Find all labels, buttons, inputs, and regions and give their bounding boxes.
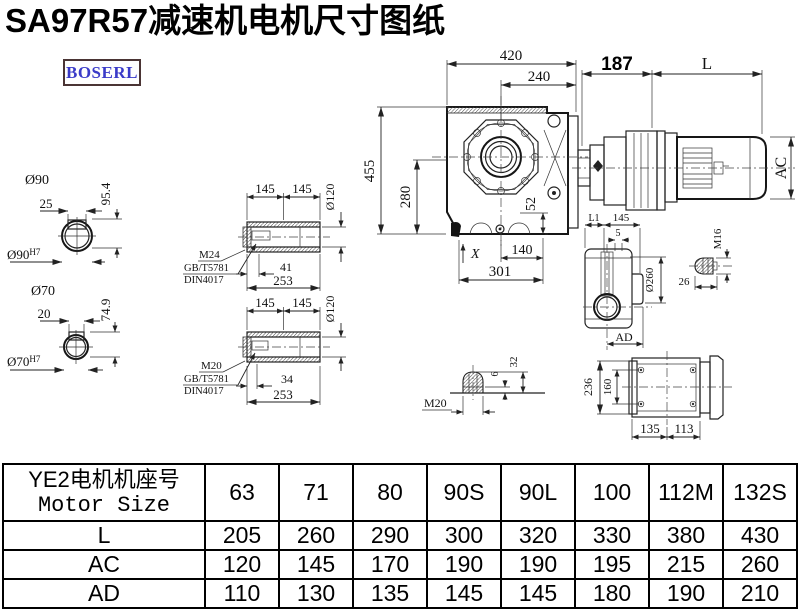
label-d90: Ø90 xyxy=(25,173,49,188)
cell-L-1: 260 xyxy=(279,521,353,550)
cell-L-6: 380 xyxy=(649,521,723,550)
dim-145b: 145 xyxy=(292,295,312,310)
size-col-63: 63 xyxy=(205,464,279,521)
dim-d120: Ø120 xyxy=(323,184,337,211)
motor-size-table: YE2电机机座号 Motor Size 63 71 80 90S 90L 100… xyxy=(2,463,798,609)
gearbox-bottom-view: 236 160 135 113 xyxy=(581,351,732,440)
dim-113: 113 xyxy=(674,421,693,436)
cell-AD-6: 190 xyxy=(649,579,723,608)
dimension-drawing: 420 240 455 280 52 140 301 X xyxy=(0,45,800,460)
shaft-section-70: Ø70 20 74.9 Ø70H7 xyxy=(7,284,120,370)
dim-AD: AD xyxy=(615,330,633,344)
dim-145: 145 xyxy=(613,212,630,224)
table-row-AD: AD 110 130 135 145 145 180 190 210 xyxy=(3,579,797,608)
label-m16: M16 xyxy=(712,228,724,249)
dim-145a: 145 xyxy=(255,295,275,310)
row-label-AC: AC xyxy=(3,550,205,579)
label-gbt5781: GB/T5781 xyxy=(184,374,229,385)
dim-25: 25 xyxy=(40,196,53,211)
table-row-AC: AC 120 145 170 190 190 195 215 260 xyxy=(3,550,797,579)
cell-AC-5: 195 xyxy=(575,550,649,579)
label-din4017: DIN4017 xyxy=(184,386,224,397)
dim-L1: L1 xyxy=(588,213,599,224)
cell-AD-0: 110 xyxy=(205,579,279,608)
size-col-80: 80 xyxy=(353,464,427,521)
bushing-m20: 145 145 Ø120 M20 GB/T5781 DIN4017 34 253 xyxy=(183,295,346,405)
dim-301: 301 xyxy=(489,264,512,280)
dim-34: 34 xyxy=(281,372,293,386)
dim-d120: Ø120 xyxy=(323,296,337,323)
cell-AC-0: 120 xyxy=(205,550,279,579)
cell-AD-7: 210 xyxy=(723,579,797,608)
dim-280: 280 xyxy=(398,186,414,209)
row-label-AD: AD xyxy=(3,579,205,608)
fit-base: Ø70 xyxy=(7,354,29,369)
dim-187: 187 xyxy=(601,54,633,75)
size-col-90l: 90L xyxy=(501,464,575,521)
header-line2: Motor Size xyxy=(4,493,204,519)
size-col-100: 100 xyxy=(575,464,649,521)
size-col-71: 71 xyxy=(279,464,353,521)
cell-AD-3: 145 xyxy=(427,579,501,608)
dim-135: 135 xyxy=(640,421,660,436)
dim-455: 455 xyxy=(362,160,378,183)
cell-AD-1: 130 xyxy=(279,579,353,608)
table-row-L: L 205 260 290 300 320 330 380 430 xyxy=(3,521,797,550)
fit-sup: H7 xyxy=(29,247,40,257)
fit-base: Ø90 xyxy=(7,247,29,262)
label-m20: M20 xyxy=(201,360,222,372)
size-col-90s: 90S xyxy=(427,464,501,521)
dim-52: 52 xyxy=(524,197,539,211)
cell-L-7: 430 xyxy=(723,521,797,550)
shaft-key-mark xyxy=(593,160,603,172)
cell-AC-2: 170 xyxy=(353,550,427,579)
dim-20: 20 xyxy=(38,306,51,321)
label-m24: M24 xyxy=(199,249,220,261)
size-col-132s: 132S xyxy=(723,464,797,521)
label-d90h7: Ø90H7 xyxy=(7,247,41,262)
dim-74-9: 74.9 xyxy=(98,299,113,322)
plug-m16: M16 26 xyxy=(679,228,735,290)
cell-L-5: 330 xyxy=(575,521,649,550)
cell-AC-4: 190 xyxy=(501,550,575,579)
dim-5: 5 xyxy=(616,228,621,239)
dim-26: 26 xyxy=(679,276,691,288)
dim-d260: Ø260 xyxy=(644,267,656,292)
dim-95-4: 95.4 xyxy=(98,182,113,205)
cell-L-3: 300 xyxy=(427,521,501,550)
cell-AD-4: 145 xyxy=(501,579,575,608)
table-header-label: YE2电机机座号 Motor Size xyxy=(3,464,205,521)
cell-AD-5: 180 xyxy=(575,579,649,608)
dim-253: 253 xyxy=(273,387,293,402)
table-header-row: YE2电机机座号 Motor Size 63 71 80 90S 90L 100… xyxy=(3,464,797,521)
cell-L-0: 205 xyxy=(205,521,279,550)
dim-x-mark: X xyxy=(470,247,480,262)
label-d70: Ø70 xyxy=(31,284,55,299)
header-line1: YE2电机机座号 xyxy=(4,467,204,493)
label-gbt5781: GB/T5781 xyxy=(184,263,229,274)
dim-41: 41 xyxy=(280,260,292,274)
size-col-112m: 112M xyxy=(649,464,723,521)
cell-AD-2: 135 xyxy=(353,579,427,608)
gearbox-front-view xyxy=(432,96,588,248)
cell-AC-6: 215 xyxy=(649,550,723,579)
plug-m20: M20 6 32 xyxy=(422,357,545,416)
gearbox-front-dims: 420 240 455 280 52 140 301 X xyxy=(362,48,576,284)
shaft-section-90: Ø90 25 95.4 Ø90H7 xyxy=(7,173,122,262)
dim-160: 160 xyxy=(602,378,614,395)
dim-140: 140 xyxy=(512,243,533,258)
dim-253: 253 xyxy=(273,273,293,288)
dim-240: 240 xyxy=(528,69,551,85)
cell-AC-1: 145 xyxy=(279,550,353,579)
cell-AC-3: 190 xyxy=(427,550,501,579)
label-din4017: DIN4017 xyxy=(184,275,224,286)
dim-32: 32 xyxy=(508,357,520,368)
label-d70h7: Ø70H7 xyxy=(7,354,41,369)
dim-236: 236 xyxy=(581,378,595,396)
label-m20: M20 xyxy=(424,396,447,410)
motor-assembly-view xyxy=(572,131,795,210)
page-title: SA97R57减速机电机尺寸图纸 xyxy=(5,0,445,42)
dim-145b: 145 xyxy=(292,181,312,196)
cell-L-4: 320 xyxy=(501,521,575,550)
cell-AC-7: 260 xyxy=(723,550,797,579)
row-label-L: L xyxy=(3,521,205,550)
bushing-m24: 145 145 Ø120 M24 GB/T5781 DIN4017 41 253 xyxy=(183,181,346,291)
fit-sup: H7 xyxy=(29,354,40,364)
gearbox-side-view: L1 145 5 Ø260 AD xyxy=(583,212,666,350)
dim-145a: 145 xyxy=(255,181,275,196)
dim-420: 420 xyxy=(500,48,523,64)
dim-L: L xyxy=(702,54,712,73)
dim-AC: AC xyxy=(773,157,790,179)
cell-L-2: 290 xyxy=(353,521,427,550)
motor-assembly-dims: 187 L AC xyxy=(582,54,795,199)
